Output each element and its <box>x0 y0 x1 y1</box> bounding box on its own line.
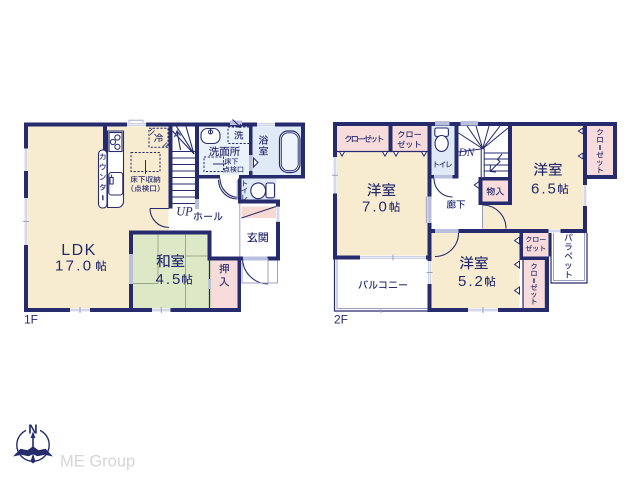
svg-text:7.0: 7.0 <box>362 199 389 216</box>
svg-text:6.5: 6.5 <box>531 181 558 198</box>
svg-text:ME Group: ME Group <box>60 453 135 471</box>
svg-text:UP: UP <box>176 205 193 219</box>
svg-text:2F: 2F <box>334 313 348 327</box>
svg-text:N: N <box>28 422 37 437</box>
svg-text:DN: DN <box>458 147 476 159</box>
svg-text:17.0: 17.0 <box>55 258 93 275</box>
svg-text:4.5: 4.5 <box>156 271 183 288</box>
svg-text:LDK: LDK <box>61 242 97 259</box>
svg-text:5.2: 5.2 <box>458 273 485 290</box>
svg-text:1F: 1F <box>24 313 38 327</box>
